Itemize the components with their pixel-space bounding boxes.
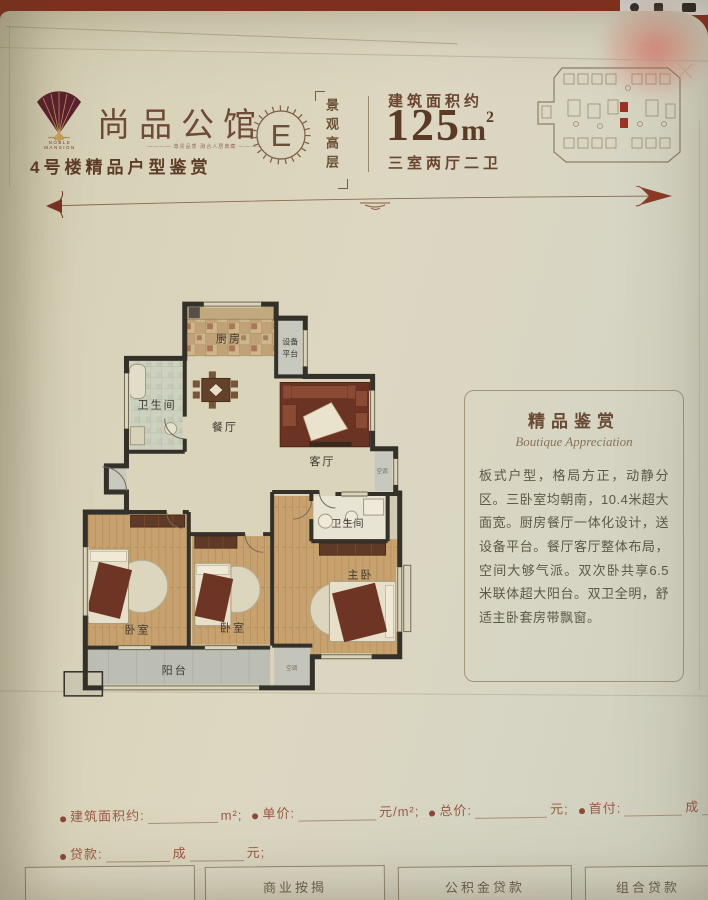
bed-master bbox=[329, 581, 395, 642]
form-unit-label: 单价: bbox=[262, 803, 295, 823]
room-label-balcony: 阳台 bbox=[162, 663, 188, 677]
divider-arrow-left-icon bbox=[46, 199, 62, 213]
room-label-bedroom-left: 卧室 bbox=[124, 623, 150, 637]
loan-box-blank bbox=[25, 865, 195, 900]
form-area-label: 建筑面积约: bbox=[70, 805, 145, 825]
panel-body: 板式户型，格局方正，动静分区。三卧室均朝南，10.4米超大面宽。厨房餐厅一体化设… bbox=[479, 464, 669, 630]
form-down-suffix: 成 bbox=[685, 796, 699, 815]
panel-title: 精品鉴赏 bbox=[479, 407, 669, 432]
form-loan-suffix: 元; bbox=[247, 842, 266, 861]
bathtub bbox=[130, 364, 146, 398]
brand-latin: NOBLEMANSION bbox=[28, 140, 92, 150]
form-unit-suffix: 元/m²; bbox=[379, 801, 420, 821]
artifact-dot-icon bbox=[682, 3, 696, 12]
form-loan-label: 贷款: bbox=[70, 844, 103, 863]
bed-mid bbox=[195, 563, 234, 625]
bed-left bbox=[87, 549, 132, 623]
room-label-ac-2: 空调 bbox=[286, 664, 298, 672]
blank-line bbox=[106, 848, 170, 863]
room-label-bath-right: 卫生间 bbox=[331, 517, 364, 530]
floorplan: 厨房 设备 平台 卫生间 餐厅 客厅 卫生间 卧室 卧室 主卧 阳台 空调 空调 bbox=[18, 278, 460, 720]
layout-type: 三室两厅二卫 bbox=[388, 152, 502, 173]
area-value: 125m2 bbox=[386, 98, 494, 151]
panel-subtitle: Boutique Appreciation bbox=[479, 434, 669, 450]
living-room-set bbox=[280, 382, 369, 446]
blank-line bbox=[190, 847, 244, 862]
form-down-label: 首付: bbox=[588, 798, 621, 818]
kitchen-stove bbox=[189, 307, 200, 318]
brand-logo-fan-icon bbox=[24, 88, 94, 144]
brand-name: 尚品公馆 bbox=[97, 98, 357, 146]
bullet-icon bbox=[60, 854, 66, 860]
bullet-icon bbox=[60, 816, 66, 822]
room-label-ac-1: 空调 bbox=[377, 467, 389, 475]
unit-badge-letter: E bbox=[271, 118, 292, 153]
bullet-icon bbox=[252, 813, 258, 819]
form-loan-mid: 成 bbox=[173, 843, 187, 862]
room-label-bath-top: 卫生间 bbox=[138, 398, 177, 412]
room-label-living: 客厅 bbox=[309, 454, 335, 468]
blank-line bbox=[148, 809, 218, 824]
form-total-label: 总价: bbox=[439, 800, 472, 820]
header-divider bbox=[368, 96, 369, 172]
page: NOBLEMANSION 尚品公馆 尊贵品质·融合人居典藏 4号楼精品户型鉴赏 … bbox=[0, 0, 708, 900]
bath-sink bbox=[131, 427, 145, 445]
loan-button-commercial[interactable]: 商业按揭 bbox=[205, 865, 385, 900]
loan-button-provident[interactable]: 公积金贷款 bbox=[398, 865, 572, 900]
loan-button-combined[interactable]: 组合贷款 bbox=[585, 865, 708, 900]
blank-line bbox=[702, 801, 708, 816]
kitchen-counter bbox=[187, 306, 274, 319]
room-label-kitchen: 厨房 bbox=[216, 332, 242, 345]
toilet bbox=[318, 514, 332, 528]
keyplan-highlight-unit bbox=[620, 118, 628, 128]
blank-line bbox=[475, 804, 547, 819]
equipment-platform bbox=[278, 320, 303, 374]
form-area-suffix: m²; bbox=[221, 808, 243, 823]
unit-tag-vertical: 景观高层 bbox=[322, 98, 341, 182]
room-label-equipment-2: 平台 bbox=[282, 348, 298, 358]
blank-line bbox=[298, 806, 376, 821]
room-label-master: 主卧 bbox=[347, 568, 373, 581]
shower bbox=[364, 499, 384, 515]
room-label-dining: 餐厅 bbox=[212, 420, 238, 434]
boutique-panel: 精品鉴赏 Boutique Appreciation 板式户型，格局方正，动静分… bbox=[464, 390, 684, 682]
bullet-icon bbox=[579, 808, 585, 814]
keyplan-highlight-unit bbox=[620, 102, 628, 112]
divider-center-ornament bbox=[360, 203, 390, 210]
form-row-2: 贷款: 成 元; bbox=[50, 842, 265, 863]
room-label-equipment-1: 设备 bbox=[282, 336, 298, 346]
blank-line bbox=[624, 802, 682, 817]
bracket-icon bbox=[315, 91, 325, 101]
room-label-bedroom-mid: 卧室 bbox=[220, 621, 246, 635]
form-total-suffix: 元; bbox=[550, 798, 569, 817]
keyplan bbox=[528, 58, 700, 190]
unit-badge: E bbox=[248, 102, 314, 168]
section-divider bbox=[0, 186, 708, 218]
bullet-icon bbox=[429, 810, 435, 816]
